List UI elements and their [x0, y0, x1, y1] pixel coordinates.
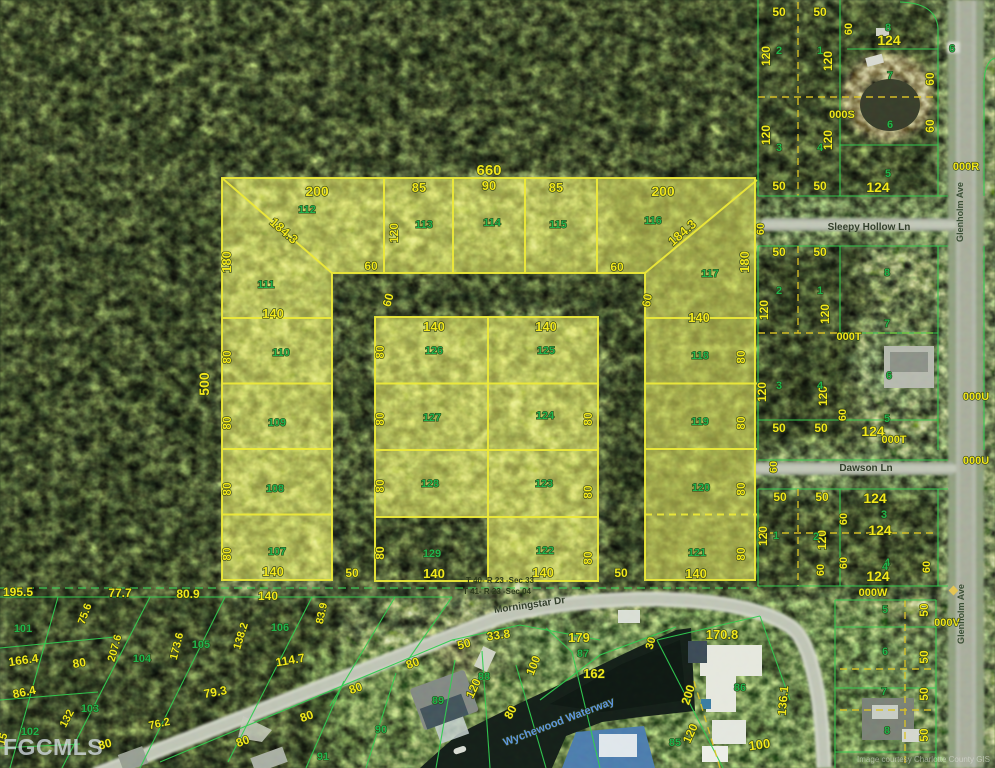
svg-text:80: 80	[72, 655, 88, 671]
svg-text:120: 120	[757, 300, 771, 320]
svg-text:000T: 000T	[836, 331, 861, 343]
svg-text:50: 50	[772, 5, 786, 19]
svg-text:107: 107	[268, 546, 286, 558]
svg-text:103: 103	[81, 703, 99, 715]
svg-text:112: 112	[298, 204, 316, 216]
svg-text:195.5: 195.5	[3, 585, 33, 599]
svg-text:109: 109	[268, 417, 286, 429]
svg-text:2: 2	[813, 531, 819, 543]
svg-text:80: 80	[373, 412, 387, 426]
svg-text:140: 140	[532, 565, 554, 580]
svg-text:116: 116	[644, 215, 662, 227]
svg-text:113: 113	[415, 219, 433, 231]
svg-text:5: 5	[882, 604, 888, 616]
svg-text:50: 50	[815, 490, 829, 504]
svg-text:86: 86	[734, 682, 746, 694]
svg-text:80: 80	[220, 482, 234, 496]
svg-text:200: 200	[651, 183, 675, 199]
svg-text:Image courtesy Charlotte Count: Image courtesy Charlotte County GIS	[857, 755, 990, 764]
svg-text:89: 89	[432, 695, 444, 707]
svg-text:122: 122	[536, 545, 554, 557]
svg-text:180: 180	[737, 251, 752, 273]
svg-text:118: 118	[691, 350, 709, 362]
svg-text:7: 7	[887, 70, 893, 82]
svg-text:80: 80	[373, 479, 387, 493]
svg-text:500: 500	[196, 372, 212, 396]
svg-text:80: 80	[734, 416, 748, 430]
svg-text:Dawson Ln: Dawson Ln	[839, 463, 892, 474]
svg-text:2: 2	[776, 45, 782, 57]
svg-text:85: 85	[669, 737, 681, 749]
svg-text:104: 104	[133, 653, 152, 665]
svg-text:101: 101	[14, 623, 32, 635]
svg-text:3: 3	[776, 142, 782, 154]
svg-text:50: 50	[772, 245, 786, 259]
svg-text:60: 60	[610, 260, 624, 274]
svg-text:170.8: 170.8	[706, 627, 739, 642]
svg-text:8: 8	[885, 22, 891, 34]
svg-text:80: 80	[734, 482, 748, 496]
svg-text:50: 50	[813, 5, 827, 19]
svg-text:T 41- R 23 -Sec 04: T 41- R 23 -Sec 04	[463, 587, 532, 596]
svg-text:60: 60	[364, 259, 378, 273]
svg-text:8: 8	[884, 267, 890, 279]
svg-text:180: 180	[219, 251, 234, 273]
svg-text:50: 50	[917, 603, 931, 617]
svg-text:127: 127	[423, 412, 441, 424]
svg-text:80: 80	[373, 345, 387, 359]
svg-text:Glenholm Ave: Glenholm Ave	[956, 584, 966, 644]
svg-text:50: 50	[813, 245, 827, 259]
svg-text:80: 80	[220, 416, 234, 430]
svg-text:108: 108	[266, 483, 284, 495]
svg-text:60: 60	[768, 461, 780, 473]
svg-text:7: 7	[884, 318, 890, 330]
svg-text:124: 124	[866, 179, 890, 195]
svg-text:136.1: 136.1	[775, 685, 792, 716]
svg-text:126: 126	[425, 345, 443, 357]
svg-text:162: 162	[583, 666, 605, 681]
svg-text:85: 85	[412, 180, 426, 195]
svg-text:100: 100	[748, 736, 772, 754]
svg-text:60: 60	[755, 223, 767, 235]
svg-text:128: 128	[421, 478, 439, 490]
svg-text:50: 50	[345, 566, 359, 580]
svg-text:80: 80	[220, 547, 234, 561]
svg-text:000S: 000S	[829, 109, 855, 121]
svg-text:6: 6	[882, 646, 888, 658]
svg-text:2: 2	[776, 285, 782, 297]
svg-text:Sleepy Hollow Ln: Sleepy Hollow Ln	[828, 222, 911, 233]
svg-text:120: 120	[759, 125, 773, 145]
svg-text:87: 87	[577, 648, 589, 660]
svg-text:50: 50	[813, 179, 827, 193]
svg-text:120: 120	[387, 223, 401, 243]
svg-text:60: 60	[837, 409, 849, 421]
svg-text:90: 90	[375, 724, 387, 736]
svg-text:115: 115	[549, 219, 567, 231]
svg-text:60: 60	[921, 561, 933, 573]
svg-text:50: 50	[614, 566, 628, 580]
svg-text:120: 120	[818, 304, 832, 324]
svg-text:124: 124	[536, 410, 555, 422]
svg-text:125: 125	[537, 345, 555, 357]
svg-text:T 40- R 23 -Sec 33: T 40- R 23 -Sec 33	[466, 576, 535, 585]
svg-text:4: 4	[817, 142, 824, 154]
svg-text:FGCMLS: FGCMLS	[3, 734, 103, 760]
svg-text:140: 140	[685, 566, 707, 581]
svg-text:80.9: 80.9	[176, 587, 200, 601]
svg-text:80: 80	[734, 547, 748, 561]
svg-text:4: 4	[882, 561, 889, 573]
svg-text:80: 80	[734, 350, 748, 364]
svg-text:80: 80	[581, 485, 595, 499]
svg-text:60: 60	[639, 292, 655, 308]
svg-text:4: 4	[817, 380, 824, 392]
svg-text:3: 3	[881, 509, 887, 521]
svg-text:120: 120	[755, 382, 769, 402]
svg-text:111: 111	[257, 279, 274, 291]
svg-text:000W: 000W	[859, 587, 888, 599]
svg-text:60: 60	[838, 513, 850, 525]
svg-text:200: 200	[305, 183, 329, 199]
svg-text:140: 140	[262, 564, 284, 579]
svg-text:000R: 000R	[953, 161, 979, 173]
svg-text:106: 106	[271, 622, 289, 634]
svg-text:50: 50	[772, 179, 786, 193]
svg-text:124: 124	[877, 32, 901, 48]
svg-text:50: 50	[814, 421, 828, 435]
svg-text:140: 140	[258, 589, 278, 603]
svg-text:120: 120	[759, 46, 773, 66]
svg-text:50: 50	[917, 687, 931, 701]
svg-text:121: 121	[688, 547, 706, 559]
svg-text:140: 140	[423, 319, 445, 334]
svg-text:000U: 000U	[963, 455, 989, 467]
svg-text:Glenholm Ave: Glenholm Ave	[955, 182, 965, 242]
svg-text:60: 60	[923, 72, 937, 86]
svg-text:105: 105	[192, 639, 210, 651]
svg-text:110: 110	[272, 347, 290, 359]
svg-text:8: 8	[884, 725, 890, 737]
svg-text:60: 60	[838, 557, 850, 569]
svg-text:140: 140	[423, 566, 445, 581]
svg-text:000T: 000T	[881, 434, 906, 446]
svg-text:124: 124	[863, 490, 887, 506]
svg-text:6: 6	[949, 43, 955, 55]
svg-text:660: 660	[476, 162, 501, 179]
svg-text:88: 88	[478, 671, 490, 683]
svg-text:129: 129	[423, 548, 441, 560]
svg-text:119: 119	[691, 416, 709, 428]
svg-text:117: 117	[701, 268, 719, 280]
svg-text:3: 3	[776, 380, 782, 392]
svg-text:60: 60	[843, 23, 855, 35]
svg-text:179: 179	[568, 630, 590, 645]
svg-text:91: 91	[317, 751, 329, 763]
svg-text:124: 124	[868, 522, 892, 538]
svg-text:6: 6	[886, 370, 892, 382]
svg-text:80: 80	[581, 551, 595, 565]
svg-text:120: 120	[821, 51, 835, 71]
svg-text:114: 114	[483, 217, 502, 229]
svg-text:80: 80	[581, 412, 595, 426]
svg-text:1: 1	[817, 45, 823, 57]
svg-text:85: 85	[549, 180, 563, 195]
svg-text:5: 5	[884, 413, 890, 425]
svg-text:000U: 000U	[963, 391, 989, 403]
svg-text:140: 140	[262, 306, 284, 321]
svg-text:80: 80	[220, 350, 234, 364]
svg-text:120: 120	[692, 482, 710, 494]
svg-text:50: 50	[917, 728, 931, 742]
svg-text:1: 1	[817, 285, 823, 297]
svg-text:140: 140	[535, 319, 557, 334]
svg-text:50: 50	[773, 490, 787, 504]
svg-text:6: 6	[887, 119, 893, 131]
svg-text:140: 140	[688, 310, 710, 325]
svg-text:90: 90	[482, 178, 496, 193]
svg-text:120: 120	[756, 526, 770, 546]
svg-text:77.7: 77.7	[108, 586, 132, 600]
svg-text:120: 120	[821, 130, 835, 150]
svg-text:5: 5	[885, 168, 891, 180]
svg-text:80: 80	[373, 546, 387, 560]
svg-text:50: 50	[772, 421, 786, 435]
svg-text:60: 60	[923, 119, 937, 133]
svg-text:1: 1	[773, 530, 779, 542]
svg-text:123: 123	[535, 478, 553, 490]
svg-text:7: 7	[881, 686, 887, 698]
svg-text:50: 50	[917, 650, 931, 664]
svg-text:60: 60	[815, 564, 827, 576]
